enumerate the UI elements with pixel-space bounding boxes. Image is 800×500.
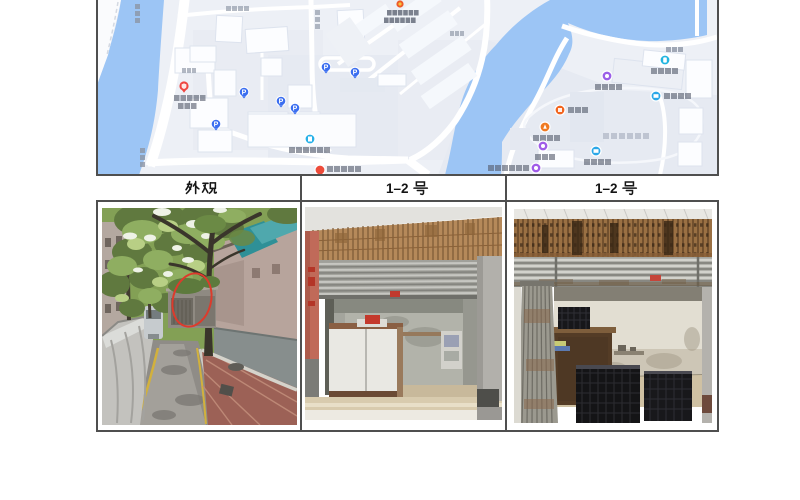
svg-text:P: P <box>242 90 247 97</box>
svg-text:1–2: 1–2 <box>386 181 409 196</box>
svg-text:P: P <box>214 122 219 129</box>
svg-text:P: P <box>324 65 329 72</box>
svg-text:P: P <box>293 106 298 113</box>
svg-text:1–2: 1–2 <box>595 181 618 196</box>
svg-text:P: P <box>353 70 358 77</box>
svg-text:P: P <box>279 99 284 106</box>
